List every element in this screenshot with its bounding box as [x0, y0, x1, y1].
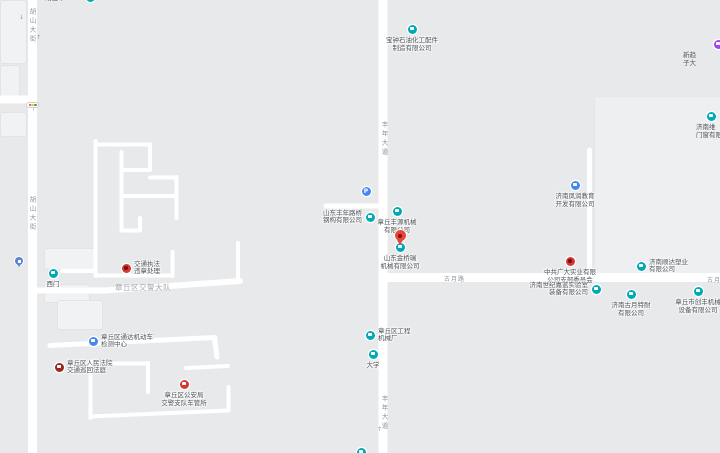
poi-label[interactable]: 济南凤润教育 开发有限公司 — [556, 193, 595, 208]
poi-label[interactable]: 交通执法 违章处理 — [134, 261, 160, 276]
parking-icon[interactable] — [362, 187, 371, 196]
court-poi-icon[interactable] — [55, 363, 64, 372]
poi-label[interactable]: 宝钟石油化工配件 制造有限公司 — [386, 37, 438, 52]
lane-arrow-up-icon: ↑ — [377, 427, 382, 433]
school-poi-icon[interactable] — [369, 350, 378, 359]
poi-label[interactable]: 章丘区公安局 交警支队车管所 — [161, 392, 207, 407]
poi-label[interactable]: 济南世纪嘉蓝实验室 装备有限公司 — [530, 282, 589, 297]
poi-label[interactable]: 章丘市创丰机械 设备有限公司 — [675, 299, 720, 314]
poi-label[interactable]: 济南古月特耐 有限公司 — [612, 302, 651, 317]
poi-label[interactable]: 山东丰年路桥 钢构有限公司 — [323, 210, 362, 225]
red-marker-pin[interactable] — [395, 230, 406, 241]
police-poi-icon[interactable] — [180, 380, 189, 389]
gate-poi-icon[interactable] — [49, 269, 58, 278]
poi-label-jinanwei-partial[interactable]: 济南维 门窗有限 — [696, 124, 720, 139]
education-poi-icon[interactable] — [571, 181, 580, 190]
map-canvas[interactable]: 胡山大街 胡山大街 丰年大道 丰年大道 古月路 古月路 章丘区交警大队 ↓ ↑ … — [0, 0, 720, 453]
poi-label[interactable]: 西门 — [47, 281, 60, 289]
road-label-guyue-road: 古月路 — [444, 274, 465, 283]
business-poi-icon[interactable] — [393, 207, 402, 216]
road-label-fengnian-avenue: 丰年大道 — [379, 121, 389, 157]
vehicle-inspection-poi-icon[interactable] — [89, 337, 98, 346]
business-poi-icon[interactable] — [592, 285, 601, 294]
poi-label-top-partial[interactable]: 胡山平 — [45, 0, 65, 3]
road-label-hushan-street: 胡山大街 — [27, 196, 37, 232]
business-poi-icon[interactable] — [694, 287, 703, 296]
poi-label[interactable]: 章丘区工程 机械厂 — [378, 328, 411, 343]
poi-label[interactable]: 章丘区人民法院 交通巡回法庭 — [67, 360, 113, 375]
business-poi-icon[interactable] — [637, 262, 646, 271]
shopping-poi-icon[interactable] — [714, 40, 720, 49]
poi-label[interactable]: 济南顺达塑业 有限公司 — [649, 259, 688, 274]
poi-label[interactable]: 章丘区通达机动车 检测中心 — [101, 334, 153, 349]
poi-label[interactable]: 山东金桥瑞 机械有限公司 — [381, 255, 420, 270]
business-poi-icon[interactable] — [366, 331, 375, 340]
poi-label[interactable]: 大学 — [367, 362, 380, 370]
lane-arrow-down-icon: ↓ — [19, 15, 24, 21]
business-poi-icon[interactable] — [408, 25, 417, 34]
government-poi-icon[interactable] — [566, 257, 575, 266]
poi-label-xinqu-partial[interactable]: 新趋 子大 — [683, 52, 696, 67]
enforcement-poi-icon[interactable] — [122, 264, 131, 273]
area-label-traffic-police-brigade: 章丘区交警大队 — [115, 282, 171, 293]
business-poi-icon[interactable] — [357, 448, 366, 453]
business-poi-icon[interactable] — [366, 213, 375, 222]
business-poi-icon[interactable] — [627, 290, 636, 299]
blue-marker-pin[interactable] — [15, 257, 23, 265]
business-poi-icon[interactable] — [707, 112, 716, 121]
lane-arrow-up-icon: ↑ — [36, 35, 41, 41]
road-network — [0, 0, 720, 453]
traffic-light-icon — [26, 102, 39, 108]
road-label-guyue-road: 古月路 — [707, 275, 720, 284]
